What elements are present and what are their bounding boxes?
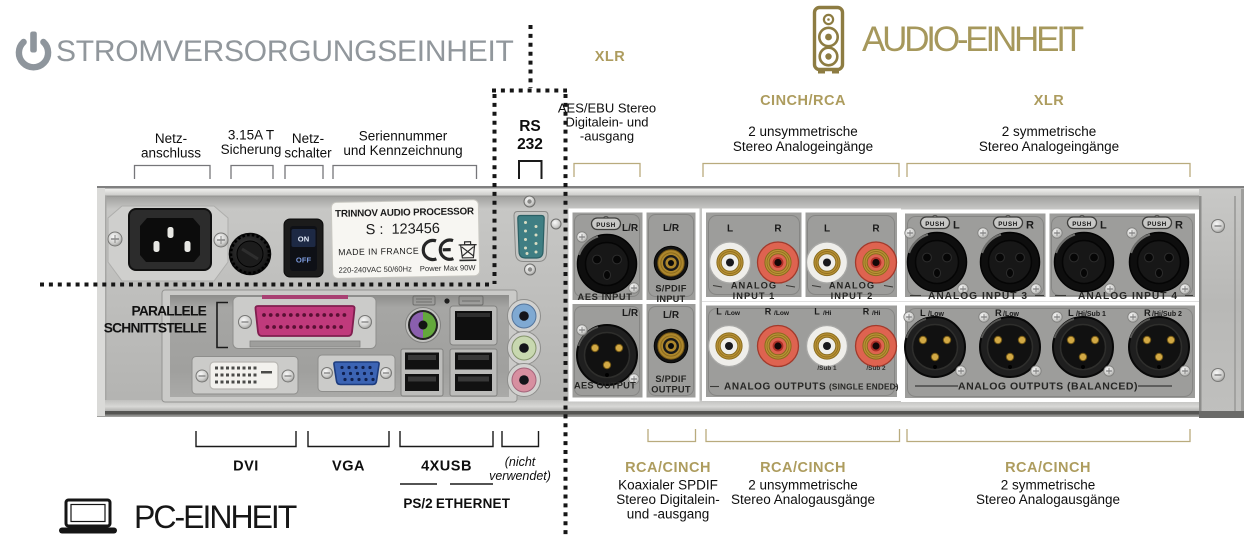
svg-text:/Hi: /Hi xyxy=(872,310,881,317)
svg-text:PUSH: PUSH xyxy=(998,221,1018,228)
svg-text:MADE IN FRANCE: MADE IN FRANCE xyxy=(338,246,419,258)
svg-text:2 unsymmetrischeStereo Analoge: 2 unsymmetrischeStereo Analogeingänge xyxy=(733,124,873,154)
svg-text:L/R: L/R xyxy=(663,223,680,234)
svg-text:L: L xyxy=(824,224,830,235)
svg-text:ANALOG INPUT 3: ANALOG INPUT 3 xyxy=(928,291,1028,302)
svg-text:/Low: /Low xyxy=(928,311,944,318)
svg-text:VGA: VGA xyxy=(332,459,365,475)
svg-text:/Sub 1: /Sub 1 xyxy=(817,365,837,372)
svg-text:PUSH: PUSH xyxy=(1147,221,1167,228)
svg-text:ANALOG INPUT 4: ANALOG INPUT 4 xyxy=(1078,291,1178,302)
svg-text:AES/EBU StereoDigitalein- und-: AES/EBU StereoDigitalein- und-ausgang xyxy=(558,101,656,144)
svg-text:ANALOG: ANALOG xyxy=(829,281,875,291)
svg-text:R: R xyxy=(774,224,782,235)
svg-text:3.15A TSicherung: 3.15A TSicherung xyxy=(221,128,282,158)
svg-text:Power Max 90W: Power Max 90W xyxy=(420,263,477,273)
svg-text:OUTPUT: OUTPUT xyxy=(651,385,691,395)
svg-text:INPUT 2: INPUT 2 xyxy=(831,291,874,301)
svg-text:ON: ON xyxy=(298,235,309,244)
svg-text:R: R xyxy=(995,308,1002,318)
svg-text:4XUSB: 4XUSB xyxy=(421,459,472,475)
svg-text:ANALOG OUTPUTS (BALANCED): ANALOG OUTPUTS (BALANCED) xyxy=(958,381,1138,393)
svg-text:RCA/CINCH: RCA/CINCH xyxy=(625,460,711,476)
svg-text:RCA/CINCH: RCA/CINCH xyxy=(1005,460,1091,476)
svg-text:/Hi: /Hi xyxy=(823,310,832,317)
svg-text:XLR: XLR xyxy=(595,49,626,65)
svg-text:R: R xyxy=(1175,220,1183,232)
svg-text:R: R xyxy=(1026,220,1034,232)
svg-text:R: R xyxy=(765,307,772,317)
svg-text:Netz-anschluss: Netz-anschluss xyxy=(141,131,201,161)
svg-text:PC-EINHEIT: PC-EINHEIT xyxy=(134,499,297,535)
svg-text:R: R xyxy=(872,224,880,235)
svg-text:L/R: L/R xyxy=(622,223,639,234)
svg-text:R: R xyxy=(1144,308,1151,318)
svg-text:verwendet): verwendet) xyxy=(489,469,551,483)
svg-text:AUDIO-EINHEIT: AUDIO-EINHEIT xyxy=(862,20,1084,59)
svg-text:PUSH: PUSH xyxy=(1072,221,1092,228)
svg-text:R: R xyxy=(863,307,870,317)
svg-text:L: L xyxy=(953,220,960,232)
svg-text:S/PDIF: S/PDIF xyxy=(655,284,686,294)
svg-text:AES INPUT: AES INPUT xyxy=(578,292,633,302)
svg-text:(nicht: (nicht xyxy=(505,455,536,469)
svg-text:L: L xyxy=(716,307,722,317)
svg-text:2 symmetrischeStereo Analogaus: 2 symmetrischeStereo Analogausgänge xyxy=(976,478,1120,508)
svg-text:/Hi/Sub 2: /Hi/Sub 2 xyxy=(1152,311,1182,318)
svg-text:Netz-schalter: Netz-schalter xyxy=(284,131,332,161)
svg-text:2 symmetrischeStereo Analogein: 2 symmetrischeStereo Analogeingänge xyxy=(979,124,1119,154)
svg-text:L: L xyxy=(1100,220,1107,232)
svg-text:AES OUTPUT: AES OUTPUT xyxy=(574,381,636,391)
svg-text:RS232: RS232 xyxy=(517,118,543,153)
svg-text:L: L xyxy=(814,307,820,317)
svg-text:Seriennummerund Kennzeichnung: Seriennummerund Kennzeichnung xyxy=(343,129,462,159)
svg-text:PARALLELE: PARALLELE xyxy=(131,304,206,319)
svg-text:/Low: /Low xyxy=(725,310,741,317)
svg-text:XLR: XLR xyxy=(1034,93,1065,109)
svg-text:PS/2: PS/2 xyxy=(403,496,432,511)
svg-text:L/R: L/R xyxy=(622,308,639,319)
svg-text:RCA/CINCH: RCA/CINCH xyxy=(760,460,846,476)
svg-text:/Sub 2: /Sub 2 xyxy=(866,365,886,372)
svg-text:CINCH/RCA: CINCH/RCA xyxy=(760,93,846,109)
svg-text:L: L xyxy=(1068,308,1074,318)
svg-text:PUSH: PUSH xyxy=(596,222,616,229)
svg-text:S/PDIF: S/PDIF xyxy=(655,374,686,384)
svg-text:STROMVERSORGUNGSEINHEIT: STROMVERSORGUNGSEINHEIT xyxy=(56,35,514,68)
svg-text:OFF: OFF xyxy=(296,256,312,265)
svg-text:ETHERNET: ETHERNET xyxy=(436,496,511,511)
svg-text:S : 123456: S : 123456 xyxy=(366,221,440,238)
svg-text:/Low: /Low xyxy=(774,310,790,317)
svg-text:ANALOG OUTPUTS: ANALOG OUTPUTS xyxy=(724,382,826,393)
svg-text:DVI: DVI xyxy=(233,459,259,475)
svg-text:L: L xyxy=(727,224,733,235)
svg-text:INPUT: INPUT xyxy=(657,294,686,304)
svg-text:INPUT 1: INPUT 1 xyxy=(733,291,776,301)
svg-text:PUSH: PUSH xyxy=(925,221,945,228)
svg-text:220-240VAC 50/60Hz: 220-240VAC 50/60Hz xyxy=(339,264,413,274)
svg-text:(SINGLE ENDED): (SINGLE ENDED) xyxy=(829,383,899,392)
svg-text:ANALOG: ANALOG xyxy=(731,281,777,291)
svg-text:Koaxialer SPDIFStereo Digitale: Koaxialer SPDIFStereo Digitalein-und -au… xyxy=(616,478,720,522)
svg-text:L: L xyxy=(920,308,926,318)
svg-text:/Low: /Low xyxy=(1003,311,1019,318)
svg-text:2 unsymmetrischeStereo Analoga: 2 unsymmetrischeStereo Analogausgänge xyxy=(731,478,875,508)
svg-text:L/R: L/R xyxy=(663,310,680,321)
svg-text:/Hi/Sub 1: /Hi/Sub 1 xyxy=(1076,311,1106,318)
svg-text:SCHNITTSTELLE: SCHNITTSTELLE xyxy=(104,321,207,336)
